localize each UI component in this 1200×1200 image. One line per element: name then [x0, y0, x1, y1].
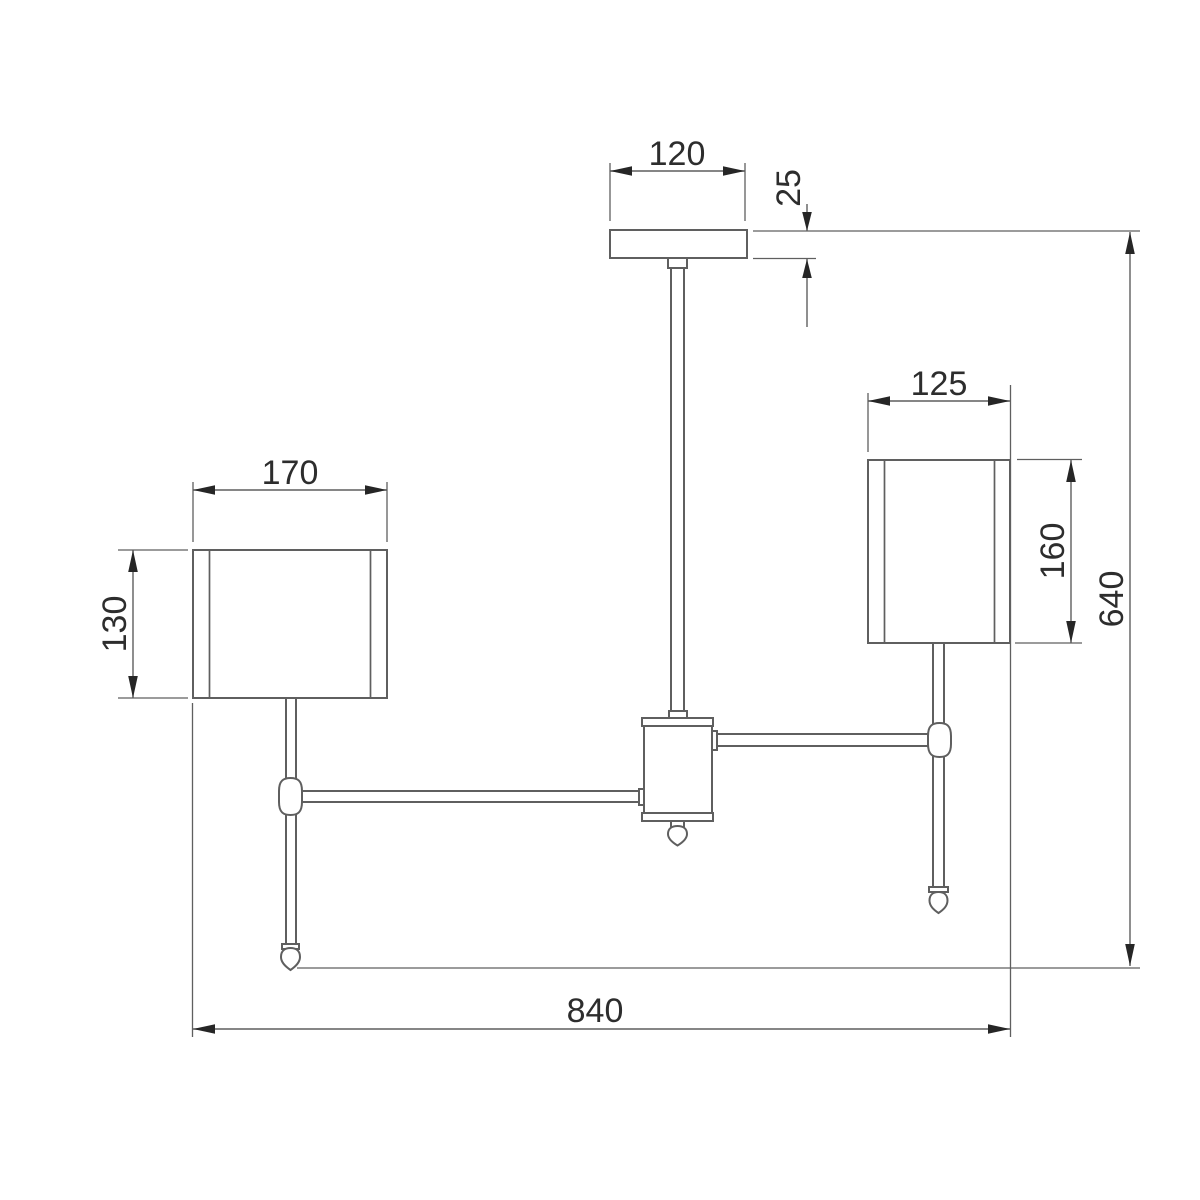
left-finial-teardrop — [281, 948, 300, 970]
dim-label-right-shade-width: 125 — [911, 365, 968, 403]
main-stem-rod — [671, 258, 684, 712]
right-lamp-shade — [868, 460, 1010, 643]
arrowhead-down — [1125, 944, 1135, 966]
dim-label-right-shade-height: 160 — [1034, 523, 1072, 580]
arrowhead-up — [1066, 460, 1076, 482]
dim-label-left-shade-width: 170 — [262, 454, 319, 492]
arrowhead-right — [988, 1024, 1010, 1034]
dim-left-shade-width: 170 — [193, 454, 387, 542]
arrowhead-up — [802, 259, 812, 278]
arrowhead-right — [723, 166, 745, 176]
dim-label-left-shade-height: 130 — [96, 596, 134, 653]
right-vertical-rod — [933, 643, 944, 887]
right-oval-connector — [928, 723, 951, 757]
technical-drawing-svg: 120 25 170 130 125 — [0, 0, 1200, 1200]
canopy-neck — [668, 258, 687, 268]
dim-overall-height: 640 — [297, 231, 1140, 968]
fixture — [193, 230, 1010, 970]
center-body — [644, 726, 712, 813]
arrowhead-left — [868, 396, 890, 406]
right-finial-teardrop — [930, 892, 948, 913]
dim-canopy-height: 25 — [753, 169, 816, 327]
dim-label-overall-width: 840 — [567, 992, 624, 1030]
ceiling-canopy — [610, 230, 747, 258]
arrowhead-right — [988, 396, 1010, 406]
arrowhead-down — [1066, 621, 1076, 643]
dim-right-shade-width: 125 — [868, 365, 1010, 452]
dim-canopy-width: 120 — [610, 135, 745, 221]
arrowhead-down — [128, 676, 138, 698]
right-arm-assembly — [712, 460, 1010, 913]
left-arm-assembly — [193, 550, 644, 970]
left-oval-connector — [279, 778, 302, 815]
left-vertical-rod — [286, 698, 296, 944]
arrowhead-left — [193, 485, 215, 495]
left-lamp-shade — [193, 550, 387, 698]
arrowhead-up — [128, 550, 138, 572]
right-arm-stub — [712, 731, 717, 750]
dim-label-canopy-width: 120 — [649, 135, 706, 173]
arrowhead-up — [1125, 232, 1135, 254]
arrowhead-left — [193, 1024, 215, 1034]
left-arm-stub — [639, 789, 644, 805]
body-bottom-cap — [642, 813, 713, 821]
body-top-cap — [642, 718, 713, 726]
arrowhead-left — [610, 166, 632, 176]
dim-left-shade-height: 130 — [96, 550, 188, 698]
arrowhead-down — [802, 212, 812, 231]
center-finial-teardrop — [668, 826, 687, 846]
left-arm — [302, 791, 640, 802]
drawing-canvas: 120 25 170 130 125 — [0, 0, 1200, 1200]
dim-right-shade-height: 160 — [1015, 460, 1082, 644]
dim-label-overall-height: 640 — [1093, 571, 1131, 628]
dim-label-canopy-height: 25 — [770, 169, 808, 207]
center-column-assembly — [610, 230, 747, 846]
arrowhead-right — [365, 485, 387, 495]
right-arm — [717, 734, 928, 746]
